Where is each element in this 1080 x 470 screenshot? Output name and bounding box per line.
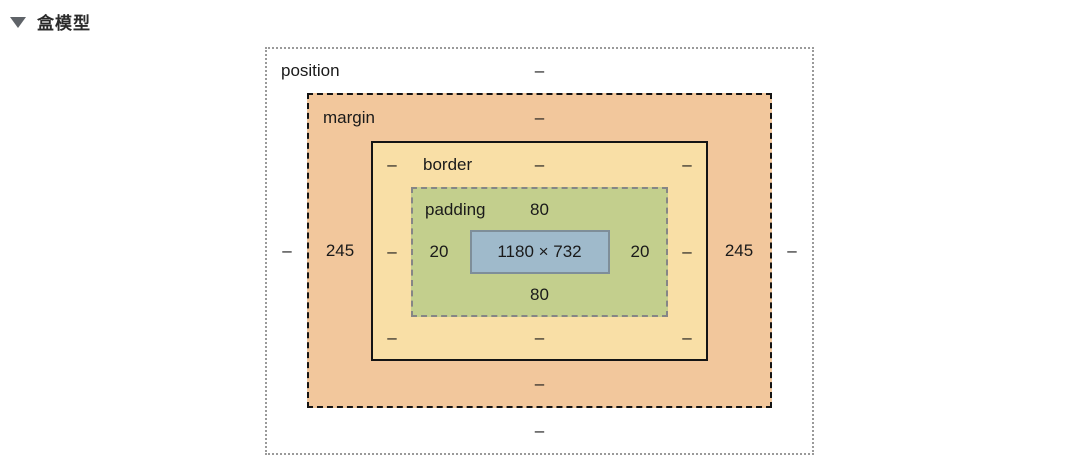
box-model-section-header[interactable]: 盒模型: [10, 9, 91, 34]
padding-top-row: padding 80: [413, 189, 666, 230]
padding-bottom-value[interactable]: 80: [530, 285, 549, 305]
position-left-value[interactable]: –: [267, 241, 307, 261]
border-top-left-value[interactable]: –: [373, 155, 411, 175]
box-model-diagram: position – – margin – 245 – border: [265, 47, 814, 455]
border-top-right-value[interactable]: –: [668, 155, 706, 175]
position-top-row: position –: [267, 49, 812, 92]
border-bottom-right-value[interactable]: –: [668, 328, 706, 348]
collapse-triangle-icon[interactable]: [10, 17, 26, 28]
margin-label: margin: [323, 108, 375, 128]
border-left-value[interactable]: –: [373, 242, 411, 262]
padding-bottom-row: 80: [413, 274, 666, 315]
padding-left-value[interactable]: 20: [413, 242, 465, 262]
padding-top-value[interactable]: 80: [530, 200, 549, 220]
padding-right-value[interactable]: 20: [614, 242, 666, 262]
border-top-value[interactable]: –: [535, 155, 544, 175]
margin-bottom-value[interactable]: –: [535, 374, 544, 394]
border-bottom-row: – – –: [373, 317, 706, 359]
margin-top-value[interactable]: –: [535, 108, 544, 128]
margin-bottom-row: –: [309, 361, 770, 406]
padding-box: padding 80 20 1180 × 732 20: [411, 187, 668, 317]
border-bottom-value[interactable]: –: [535, 328, 544, 348]
border-bottom-left-value[interactable]: –: [373, 328, 411, 348]
position-bottom-value[interactable]: –: [535, 421, 544, 441]
section-title: 盒模型: [37, 9, 91, 34]
position-top-value[interactable]: –: [535, 61, 544, 81]
border-right-value[interactable]: –: [668, 242, 706, 262]
margin-right-value[interactable]: 245: [708, 241, 770, 261]
content-box[interactable]: 1180 × 732: [470, 230, 610, 274]
padding-label: padding: [425, 200, 486, 220]
position-label: position: [281, 61, 340, 81]
border-label: border: [423, 155, 472, 175]
margin-left-value[interactable]: 245: [309, 241, 371, 261]
position-box: position – – margin – 245 – border: [265, 47, 814, 455]
position-right-value[interactable]: –: [772, 241, 812, 261]
margin-box: margin – 245 – border – –: [307, 93, 772, 408]
margin-top-row: margin –: [309, 95, 770, 141]
border-box: – border – – – padding: [371, 141, 708, 361]
position-bottom-row: –: [267, 409, 812, 453]
border-top-row: – border – –: [373, 143, 706, 187]
